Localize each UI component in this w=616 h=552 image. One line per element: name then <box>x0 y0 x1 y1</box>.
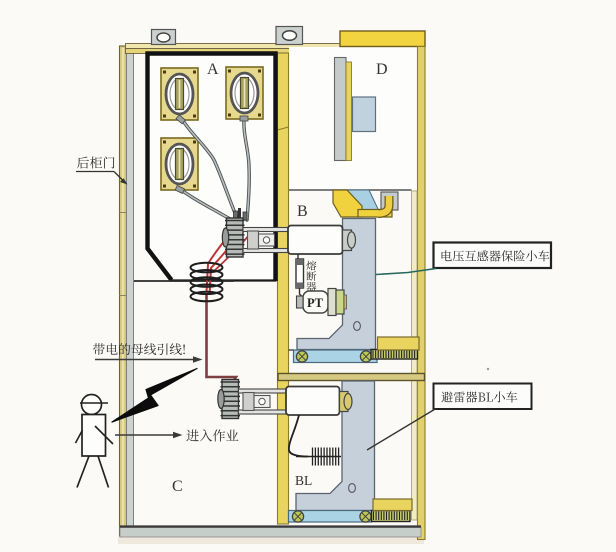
svg-text:BL: BL <box>295 473 312 488</box>
svg-text:A: A <box>207 61 219 78</box>
svg-text:PT: PT <box>307 296 324 310</box>
svg-text:B: B <box>297 203 308 220</box>
svg-text:C: C <box>172 478 183 495</box>
svg-text:D: D <box>376 61 388 78</box>
